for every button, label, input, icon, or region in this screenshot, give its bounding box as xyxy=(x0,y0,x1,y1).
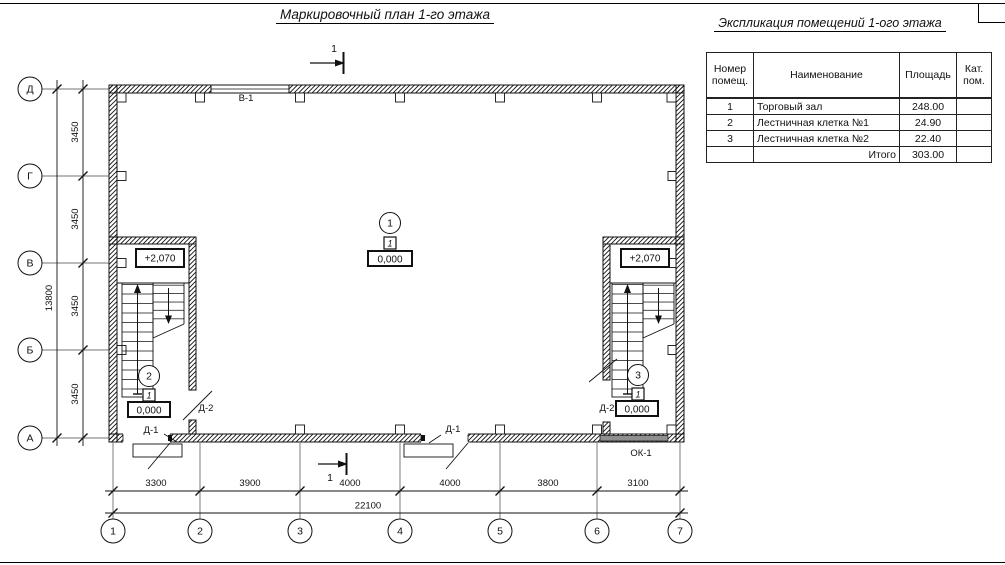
room-number: 2 xyxy=(146,371,152,383)
axis-label: 5 xyxy=(497,526,503,538)
room-marker-1: 1 1 0,000 xyxy=(368,213,412,267)
wall-right xyxy=(676,85,684,442)
axis-label: 2 xyxy=(197,526,203,538)
dim-value: 4000 xyxy=(439,478,460,489)
axis-label: В xyxy=(26,258,33,270)
section-label: 1 xyxy=(327,472,333,484)
window-ok1 xyxy=(600,436,668,442)
axis-label: 7 xyxy=(677,526,683,538)
stair-left-side-wall xyxy=(189,244,196,390)
dim-value: 3300 xyxy=(145,478,166,489)
elevation-upper-label: +2,070 xyxy=(630,254,661,265)
window-ok1-label: ОК-1 xyxy=(630,448,651,459)
dim-value: 3900 xyxy=(239,478,260,489)
axis-label: 3 xyxy=(297,526,303,538)
room-number: 1 xyxy=(387,218,393,230)
dim-total-value: 13800 xyxy=(44,285,55,311)
dimension-line-bottom-total: 22100 xyxy=(105,501,688,518)
stair-break-line xyxy=(643,324,674,338)
axis-label: Г xyxy=(27,171,33,183)
stair-right-top-wall xyxy=(603,237,684,244)
axis-bubbles-left: Д Г В Б А xyxy=(18,77,42,450)
section-label: 1 xyxy=(331,43,337,55)
door-d2-right-label: Д-2 xyxy=(600,403,615,414)
dim-value: 3800 xyxy=(537,478,558,489)
elevation-zero-label: 0,000 xyxy=(624,405,649,416)
dim-total-value: 22100 xyxy=(355,501,381,512)
floor-plan-drawing: В-1 ОК-1 Д-1 Д-1 xyxy=(0,0,1005,565)
axis-bubbles-bottom: 1 2 3 4 5 6 7 xyxy=(101,519,692,543)
axis-lines-bottom xyxy=(113,443,680,519)
elevation-zero-label: 0,000 xyxy=(377,255,402,266)
stair-right-side-wall xyxy=(603,244,610,380)
stair-right-wall-stub xyxy=(603,422,610,434)
window-v1-label: В-1 xyxy=(239,93,254,104)
axis-label: А xyxy=(26,433,33,445)
wall-bottom xyxy=(109,434,684,442)
wall-top xyxy=(109,85,684,93)
dim-value: 3450 xyxy=(70,121,81,142)
door-d1-right-label: Д-1 xyxy=(446,424,461,435)
axis-label: 4 xyxy=(397,526,403,538)
dim-value: 4000 xyxy=(339,478,360,489)
window-v1 xyxy=(211,85,289,93)
dim-value: 3450 xyxy=(70,383,81,404)
dim-value: 3450 xyxy=(70,295,81,316)
elevation-upper-label: +2,070 xyxy=(145,254,176,265)
axis-label: 6 xyxy=(594,526,600,538)
floor-square-label: 1 xyxy=(146,391,151,401)
dim-value: 3450 xyxy=(70,208,81,229)
axis-label: Б xyxy=(27,345,34,357)
dim-value: 3100 xyxy=(627,478,648,489)
floor-square-label: 1 xyxy=(635,390,640,400)
room-number: 3 xyxy=(635,370,641,382)
door-d2-left-label: Д-2 xyxy=(199,403,214,414)
wall-left xyxy=(109,85,117,442)
dimension-line-bottom-segments: 3300 3900 4000 4000 3800 3100 xyxy=(105,478,688,496)
section-mark-top: 1 xyxy=(310,43,345,74)
stair-left-wall-stub xyxy=(189,420,196,434)
drawing-sheet: Маркировочный план 1-го этажа Экспликаци… xyxy=(0,0,1005,565)
floor-square-label: 1 xyxy=(387,239,392,249)
axis-label: Д xyxy=(26,84,33,96)
elevation-zero-label: 0,000 xyxy=(136,406,161,417)
stair-left-top-wall xyxy=(109,237,196,244)
stair-break-line xyxy=(153,324,184,338)
door-d1-left-label: Д-1 xyxy=(144,425,159,436)
axis-label: 1 xyxy=(110,526,116,538)
